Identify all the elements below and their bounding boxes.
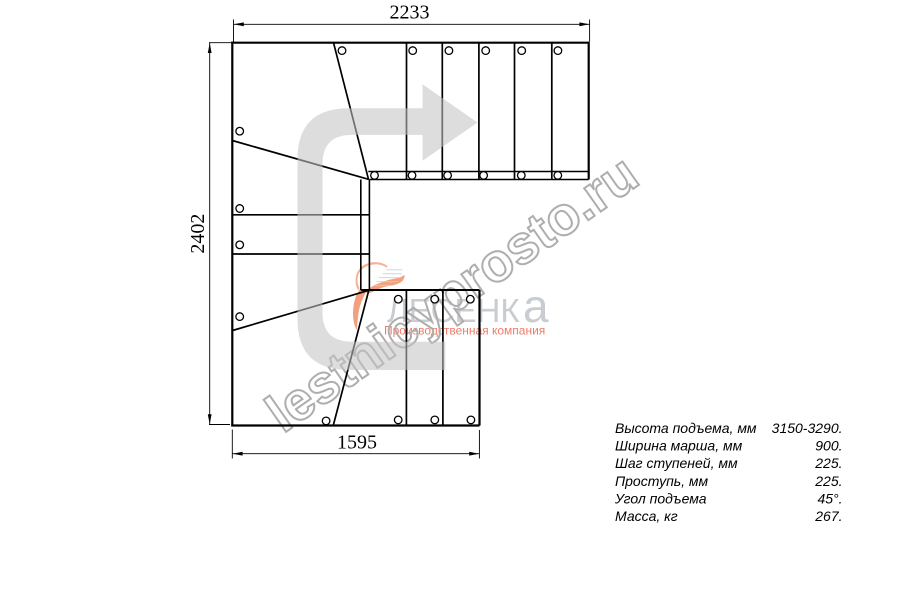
svg-text:900.: 900. xyxy=(815,438,842,454)
svg-text:2402: 2402 xyxy=(187,214,209,254)
svg-text:Ширина марша, мм: Ширина марша, мм xyxy=(615,438,743,454)
svg-text:3150-3290.: 3150-3290. xyxy=(772,420,843,436)
svg-text:267.: 267. xyxy=(814,508,842,524)
svg-text:Шаг ступеней, мм: Шаг ступеней, мм xyxy=(615,455,738,471)
svg-text:Проступь, мм: Проступь, мм xyxy=(615,473,709,489)
svg-text:Масса, кг: Масса, кг xyxy=(615,508,678,524)
svg-text:225.: 225. xyxy=(814,455,842,471)
svg-text:45°.: 45°. xyxy=(817,490,842,506)
svg-text:2233: 2233 xyxy=(390,2,430,24)
svg-text:225.: 225. xyxy=(814,473,842,489)
svg-text:Угол подъема: Угол подъема xyxy=(614,490,707,506)
svg-text:Высота подъема, мм: Высота подъема, мм xyxy=(615,420,757,436)
svg-text:1595: 1595 xyxy=(337,432,377,454)
